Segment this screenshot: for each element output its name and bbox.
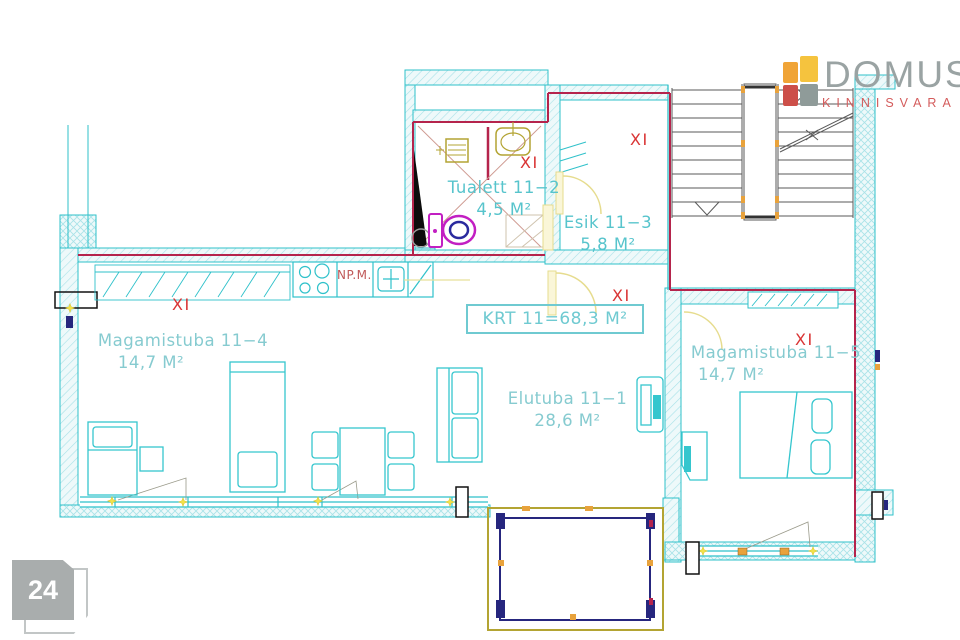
logo-tile-yellow bbox=[800, 56, 818, 82]
room-label-magamistuba-4: Magamistuba 11−4 14,7 M² bbox=[88, 330, 278, 375]
logo-tile-gray bbox=[800, 84, 818, 106]
room-label-esik: Esik 11−3 5,8 M² bbox=[548, 212, 668, 257]
room-area: 28,6 M² bbox=[495, 410, 640, 432]
room-name: Magamistuba 11−4 bbox=[88, 330, 278, 352]
floor-marker: XI bbox=[612, 286, 631, 305]
floor-marker: XI bbox=[795, 330, 814, 349]
wardrobe-strip bbox=[95, 265, 290, 300]
company-logo: DOMUS KINNISVARA bbox=[778, 52, 958, 114]
floor-marker: XI bbox=[630, 130, 649, 149]
room-name: Elutuba 11−1 bbox=[495, 388, 640, 410]
room-label-elutuba: Elutuba 11−1 28,6 M² bbox=[495, 388, 640, 433]
kitchen-counter bbox=[293, 262, 470, 297]
room-name: Magamistuba 11−5 bbox=[690, 342, 862, 364]
logo-name: DOMUS bbox=[824, 54, 960, 96]
floorplan-page: Tualett 11−2 4,5 M² Esik 11−3 5,8 M² Mag… bbox=[0, 0, 960, 640]
kitchen-note-label: NP.M. bbox=[337, 268, 372, 282]
page-number-badge: 24 bbox=[6, 556, 88, 638]
room-name: Tualett 11−2 bbox=[428, 177, 580, 199]
logo-tile-red bbox=[783, 85, 798, 106]
room-area: 5,8 M² bbox=[548, 234, 668, 256]
logo-subtitle: KINNISVARA bbox=[822, 96, 957, 110]
apartment-total-area-box: KRT 11=68,3 M² bbox=[466, 304, 644, 334]
page-number: 24 bbox=[28, 575, 58, 606]
logo-tile-orange bbox=[783, 62, 798, 83]
floor-marker: XI bbox=[520, 153, 539, 172]
floor-marker: XI bbox=[172, 295, 191, 314]
room-name: Esik 11−3 bbox=[548, 212, 668, 234]
room-area: 14,7 M² bbox=[690, 364, 862, 386]
room-label-magamistuba-5: Magamistuba 11−5 14,7 M² bbox=[690, 342, 862, 387]
balcony bbox=[488, 506, 663, 630]
room-area: 14,7 M² bbox=[56, 352, 246, 374]
badge-front-sheet: 24 bbox=[12, 560, 74, 620]
duct-shaft bbox=[414, 150, 427, 246]
